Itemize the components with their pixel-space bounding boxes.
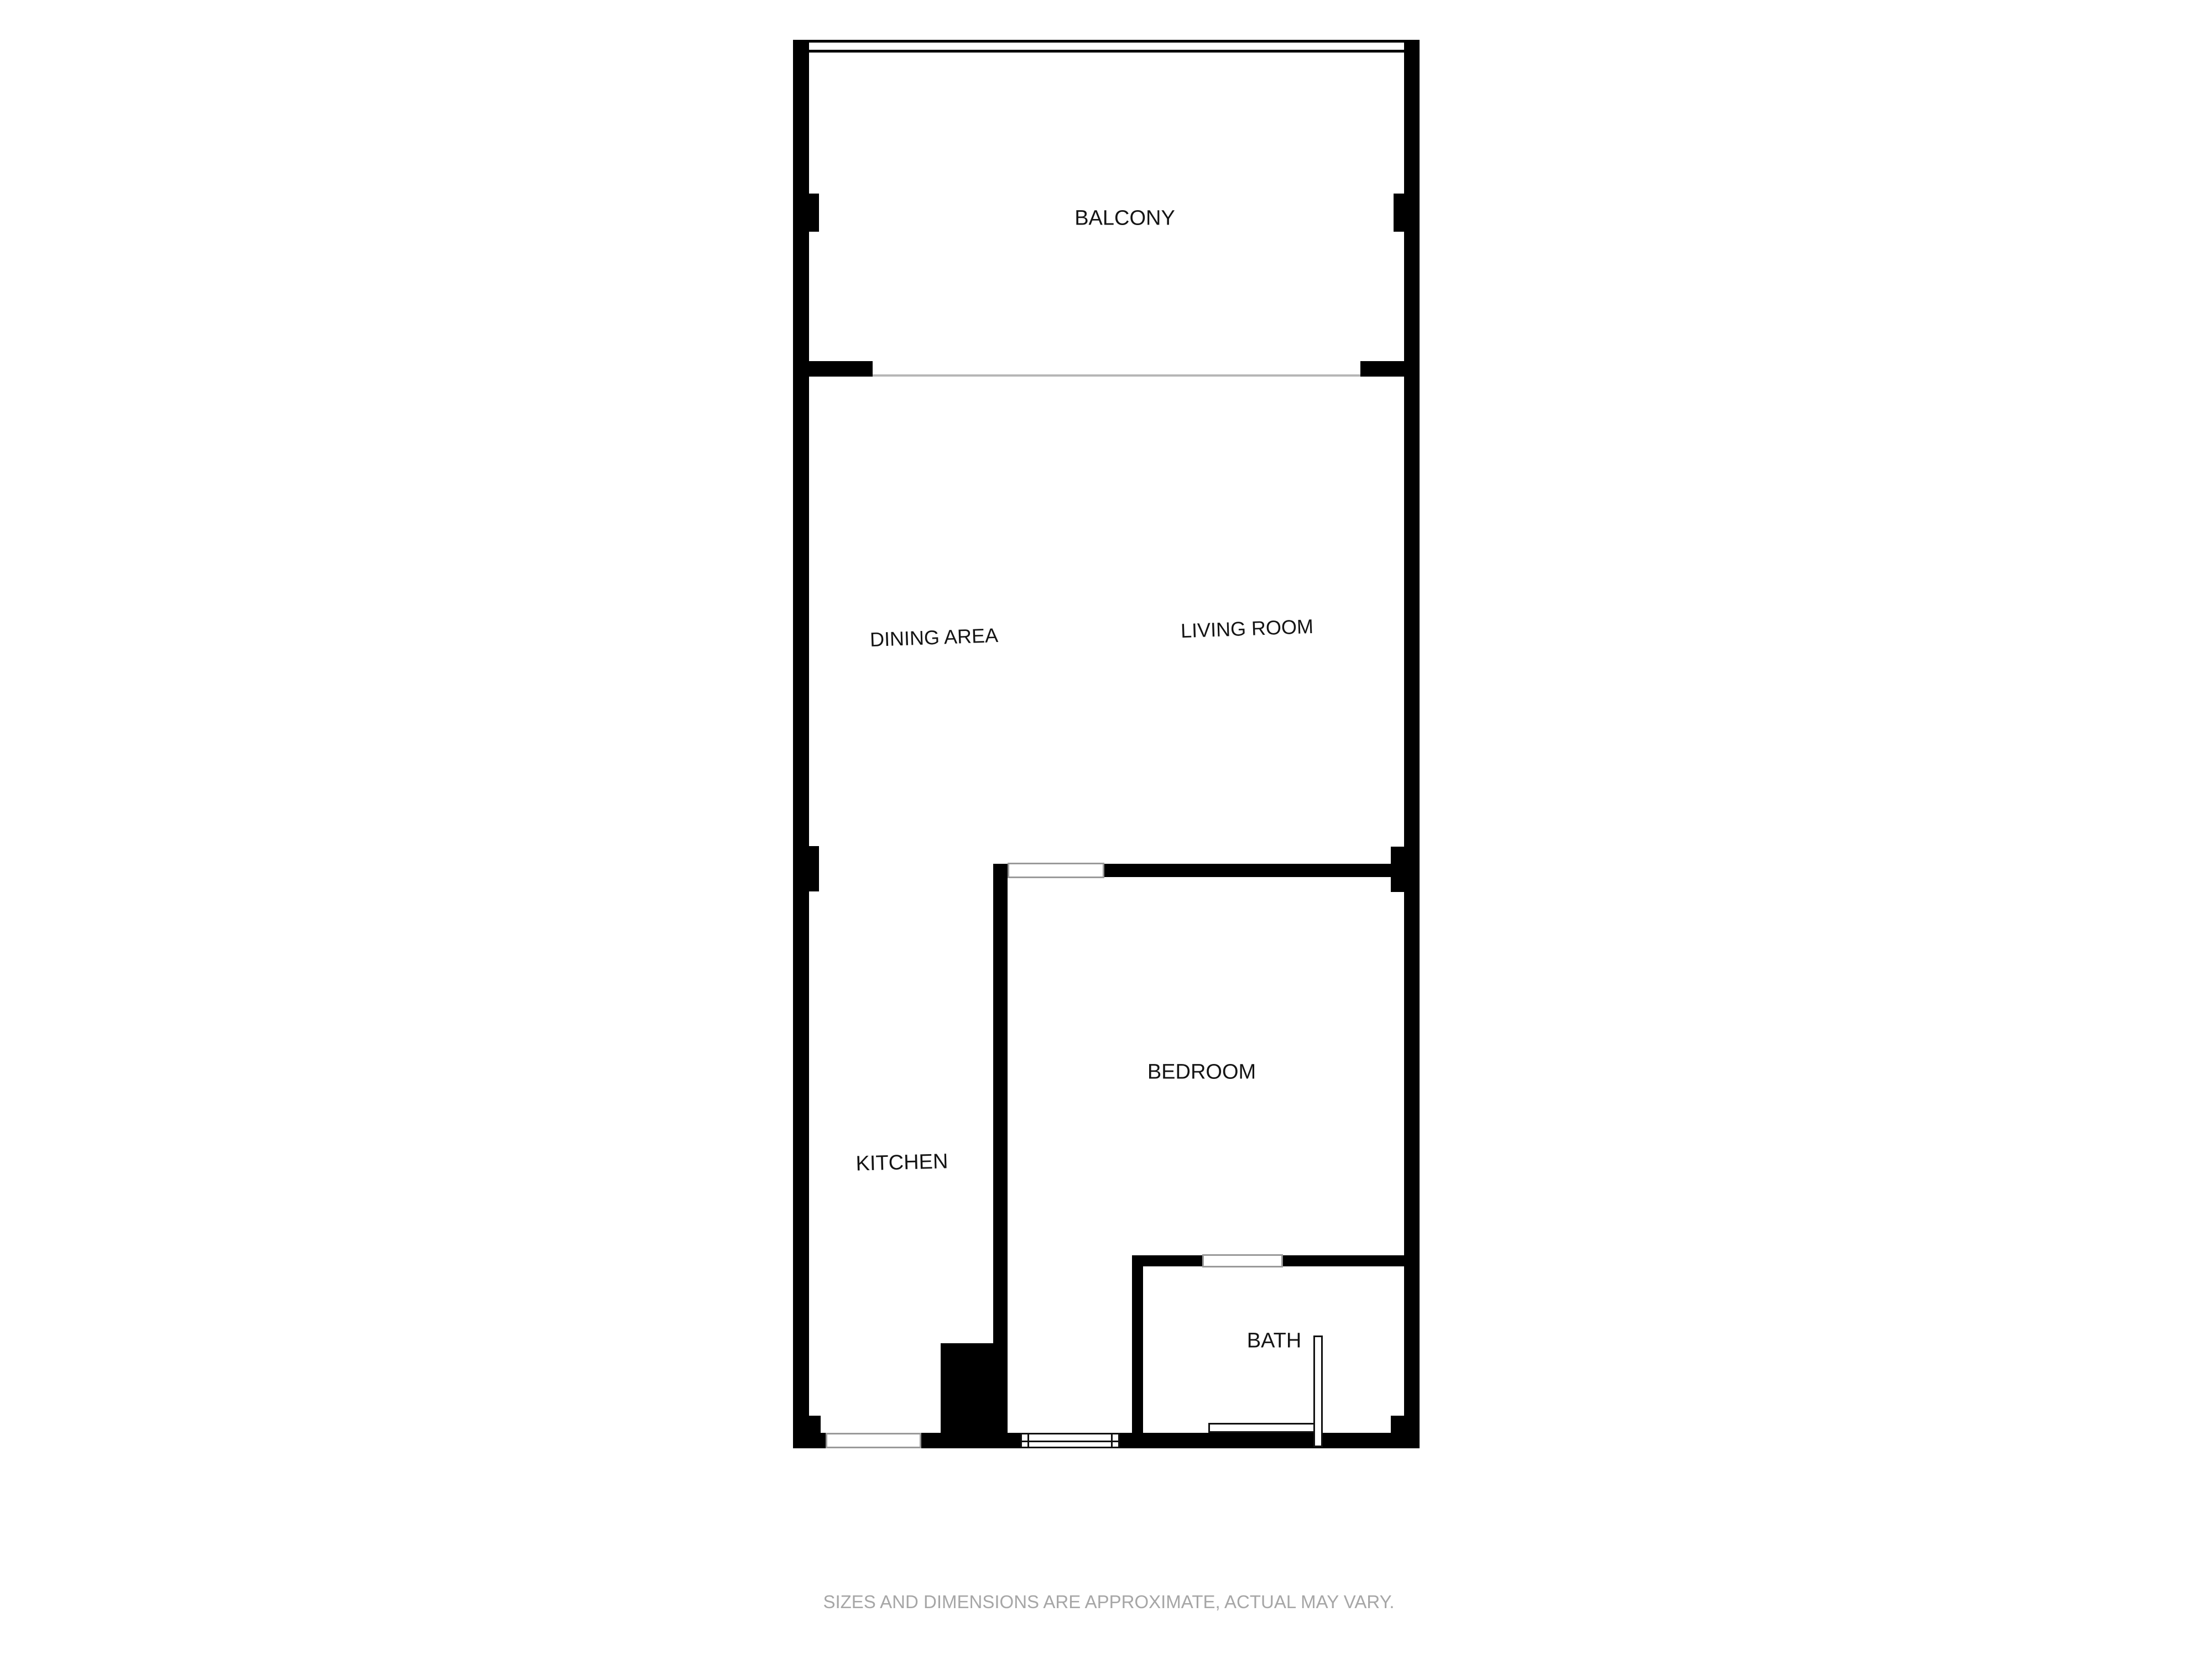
kitchen-label: KITCHEN (855, 1150, 948, 1176)
balcony-pillar-left (793, 194, 819, 232)
entry-door-track-line (1022, 1441, 1118, 1442)
dining-area-label: DINING AREA (869, 624, 998, 651)
shower-screen-horizontal (1208, 1423, 1323, 1433)
balcony-label: BALCONY (1074, 207, 1175, 231)
bath-label: BATH (1247, 1329, 1302, 1353)
balcony-railing-bottom-line (793, 50, 1420, 53)
wall-right-bottom-step (1391, 1416, 1404, 1433)
balcony-divider-wall-right (1360, 361, 1420, 377)
shower-screen-vertical (1313, 1335, 1323, 1447)
kitchen-window (826, 1433, 921, 1448)
bedroom-label: BEDROOM (1147, 1061, 1256, 1084)
wall-left-bottom-widening (793, 1416, 821, 1448)
entry-door (1020, 1433, 1120, 1448)
bath-left-wall (1132, 1255, 1143, 1448)
floorplan-canvas: BALCONY DINING AREA LIVING ROOM KITCHEN … (0, 0, 2212, 1659)
wall-right (1404, 40, 1420, 1448)
balcony-railing-top-line (793, 40, 1420, 43)
bedroom-interior-window (1008, 863, 1104, 878)
balcony-sliding-door-line (873, 374, 1360, 377)
balcony-divider-wall-left (793, 361, 873, 377)
wall-left (793, 40, 809, 1448)
living-room-label: LIVING ROOM (1180, 615, 1313, 643)
balcony-pillar-right (1394, 194, 1420, 232)
dining-pillar-left (793, 846, 819, 891)
disclaimer-text: SIZES AND DIMENSIONS ARE APPROXIMATE, AC… (823, 1592, 1394, 1613)
bath-window (1202, 1254, 1283, 1267)
